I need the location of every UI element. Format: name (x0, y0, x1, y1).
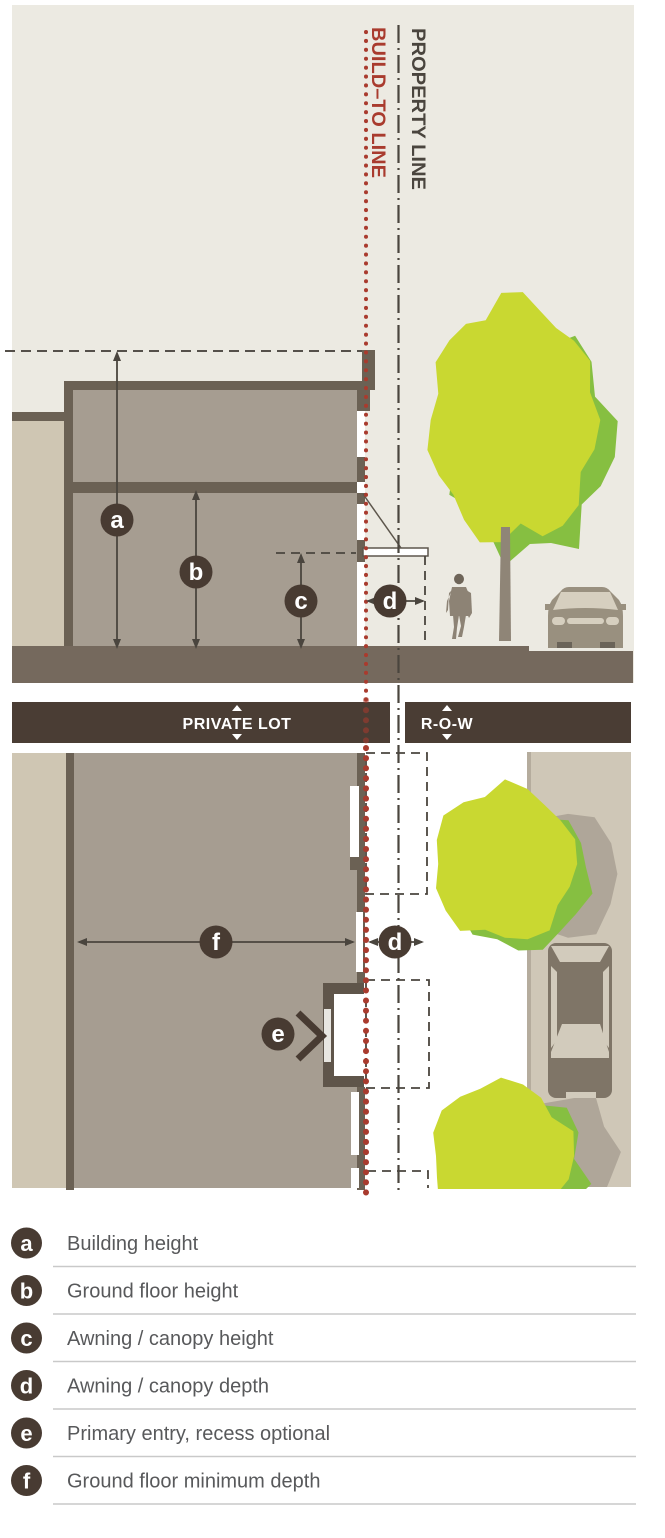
svg-text:e: e (271, 1021, 284, 1048)
svg-text:Ground floor height: Ground floor height (67, 1281, 239, 1303)
svg-text:b: b (189, 559, 204, 586)
svg-text:Primary entry, recess optional: Primary entry, recess optional (67, 1423, 330, 1445)
svg-text:d: d (383, 588, 398, 615)
svg-text:Ground floor minimum depth: Ground floor minimum depth (67, 1471, 320, 1493)
svg-text:d: d (388, 929, 403, 956)
svg-text:a: a (20, 1231, 33, 1256)
svg-text:PROPERTY LINE: PROPERTY LINE (407, 28, 428, 190)
svg-text:b: b (20, 1279, 33, 1304)
svg-text:c: c (294, 588, 307, 615)
svg-text:R-O-W: R-O-W (421, 716, 474, 733)
svg-text:f: f (23, 1469, 31, 1494)
svg-text:c: c (20, 1326, 32, 1351)
svg-text:BUILD–TO LINE: BUILD–TO LINE (367, 27, 388, 178)
svg-text:a: a (110, 507, 124, 534)
svg-text:e: e (20, 1421, 32, 1446)
svg-text:Awning / canopy height: Awning / canopy height (67, 1328, 274, 1350)
svg-text:PRIVATE LOT: PRIVATE LOT (183, 716, 292, 733)
svg-text:Awning / canopy depth: Awning / canopy depth (67, 1376, 269, 1398)
svg-text:f: f (212, 929, 221, 956)
svg-text:Building height: Building height (67, 1233, 199, 1255)
svg-text:d: d (20, 1374, 33, 1399)
